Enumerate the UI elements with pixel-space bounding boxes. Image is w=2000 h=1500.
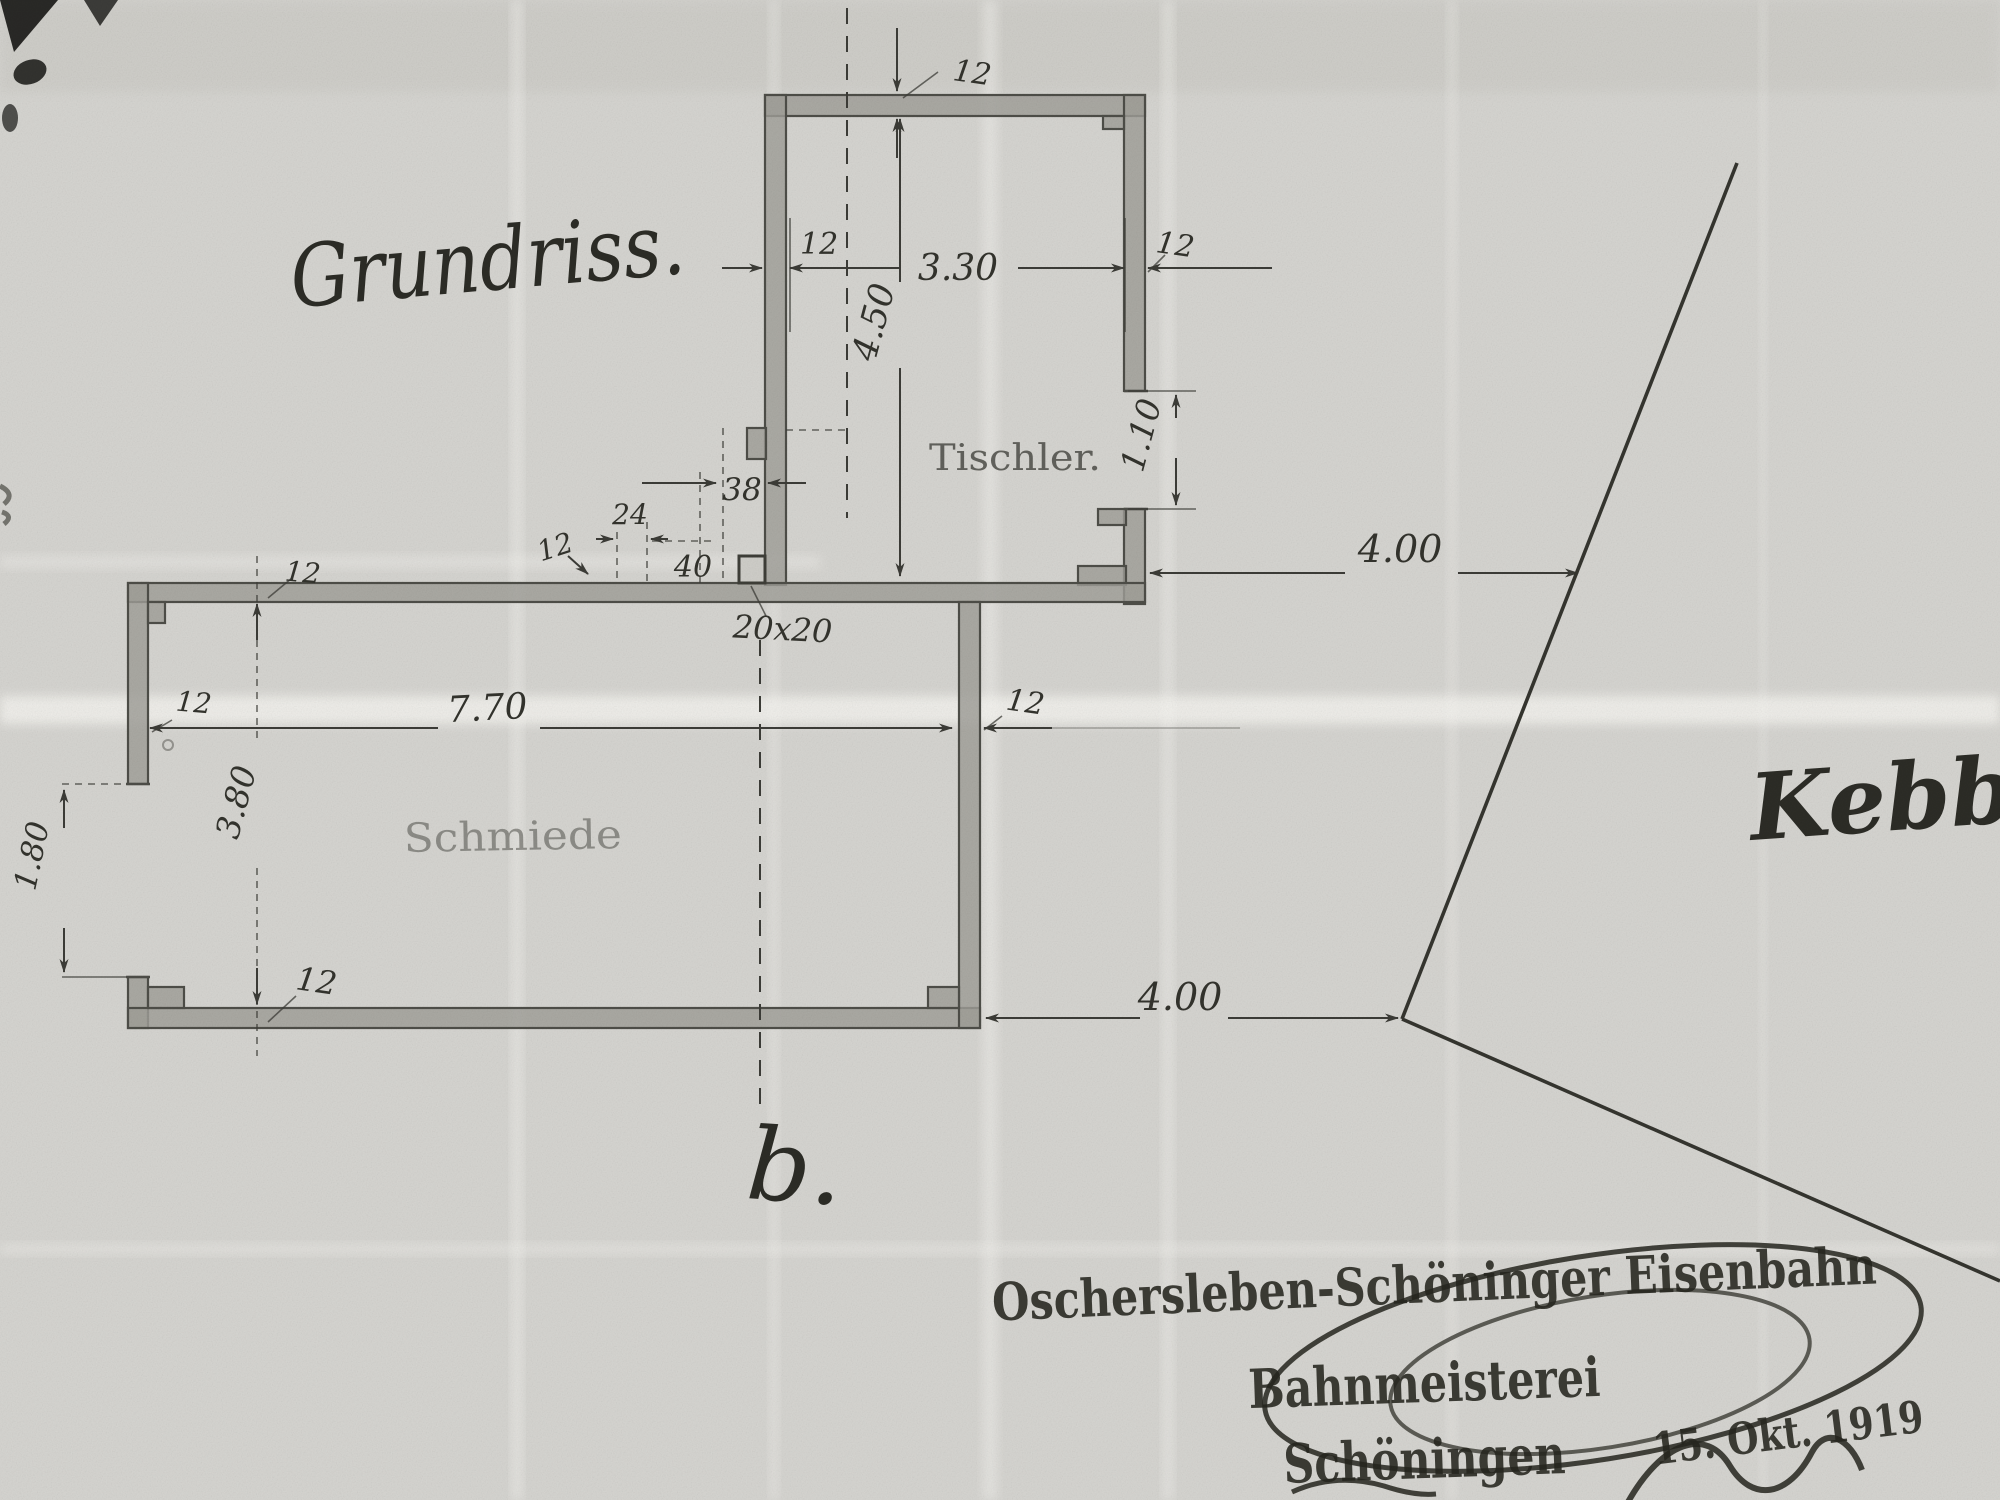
dim-schmiede-depth: 3.80: [208, 761, 265, 842]
stamp-line3: Schöningen: [1282, 1422, 1566, 1496]
dim-pier: 24: [611, 498, 648, 531]
dim-wall-770-left: 12: [175, 685, 213, 721]
page-title: Grundriss.: [286, 194, 688, 328]
dim-wall-left-top: 12: [284, 555, 322, 591]
schmiede-right-wall: [959, 602, 980, 1028]
dim-tischler-depth: 4.50: [845, 279, 904, 366]
tischler-right-wall-upper: [1124, 95, 1145, 391]
tischler-left-wall: [765, 95, 786, 585]
boundary-line-lower: [1402, 1019, 2000, 1281]
tischler-left-wall-notch: [747, 428, 766, 459]
dim-jamb: 38: [722, 472, 761, 508]
dim-wall-330-left: 12: [800, 227, 838, 262]
schmiede-bottom-right-pilaster: [928, 987, 959, 1008]
dim-wall-top: 12: [951, 53, 994, 93]
dim-wall-770-right: 12: [1004, 683, 1047, 723]
scanned-floor-plan-sheet: Grundriss. Tischler. Schmiede 12 12 3.30…: [0, 0, 2000, 1500]
dim-offset-upper: 4.00: [1357, 527, 1443, 571]
room-label-tischler: Tischler.: [929, 438, 1101, 479]
tischler-top-wall: [765, 95, 1145, 116]
dim-wall-bottom: 12: [294, 959, 340, 1002]
dim-wall-330-right: 12: [1154, 225, 1197, 265]
post-20x20-shape: [739, 556, 765, 583]
dim-post: 20x20: [731, 607, 833, 650]
dim-offset-lower: 4.00: [1137, 975, 1223, 1019]
section-letter: b.: [743, 1105, 847, 1228]
schmiede-left-wall-upper: [128, 583, 148, 784]
tischler-top-right-step: [1103, 116, 1124, 129]
dim-tischler-width: 3.30: [918, 248, 998, 289]
dimension-labels: 12 12 3.30 12 4.50 1.10 4.00 38 24 12 40…: [7, 53, 1442, 1019]
dim-tischler-opening: 1.10: [1113, 394, 1170, 475]
dim-schmiede-width: 7.70: [446, 686, 528, 731]
schmiede-top-left-pilaster: [148, 602, 165, 623]
dimension-lines: [62, 28, 1578, 1056]
floor-plan-drawing: Grundriss. Tischler. Schmiede 12 12 3.30…: [0, 0, 2000, 1500]
main-horizontal-wall: [128, 583, 1145, 602]
dim-schmiede-opening: 1.80: [7, 818, 57, 893]
schmiede-bottom-left-pilaster: [148, 987, 184, 1008]
room-label-schmiede: Schmiede: [403, 812, 622, 862]
tischler-right-wall-stub: [1098, 509, 1126, 525]
annotation-kebbel: Kebbel: [1743, 729, 2000, 862]
date-stamp-text: 15. Okt. 1919: [1650, 1392, 1926, 1476]
dim-flue: 40: [673, 550, 712, 585]
schmiede-bottom-wall: [128, 1008, 980, 1028]
